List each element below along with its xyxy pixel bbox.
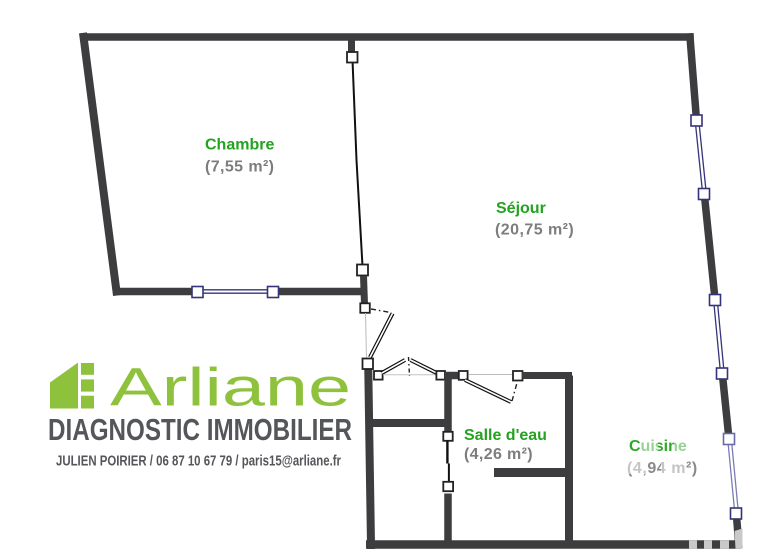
svg-text:DIAGNOSTIC IMMOBILIER: DIAGNOSTIC IMMOBILIER — [48, 413, 352, 447]
svg-text:Chambre: Chambre — [205, 137, 274, 154]
svg-text:(4,26 m²): (4,26 m²) — [464, 446, 533, 463]
svg-text:JULIEN POIRIER / 06 87 10 67 7: JULIEN POIRIER / 06 87 10 67 79 / paris1… — [56, 454, 341, 470]
svg-text:(20,75 m²): (20,75 m²) — [495, 222, 574, 239]
svg-text:Salle d'eau: Salle d'eau — [464, 427, 547, 444]
svg-text:(7,55 m²): (7,55 m²) — [205, 159, 274, 176]
svg-text:Séjour: Séjour — [496, 200, 546, 217]
svg-text:Arliane: Arliane — [110, 358, 351, 418]
